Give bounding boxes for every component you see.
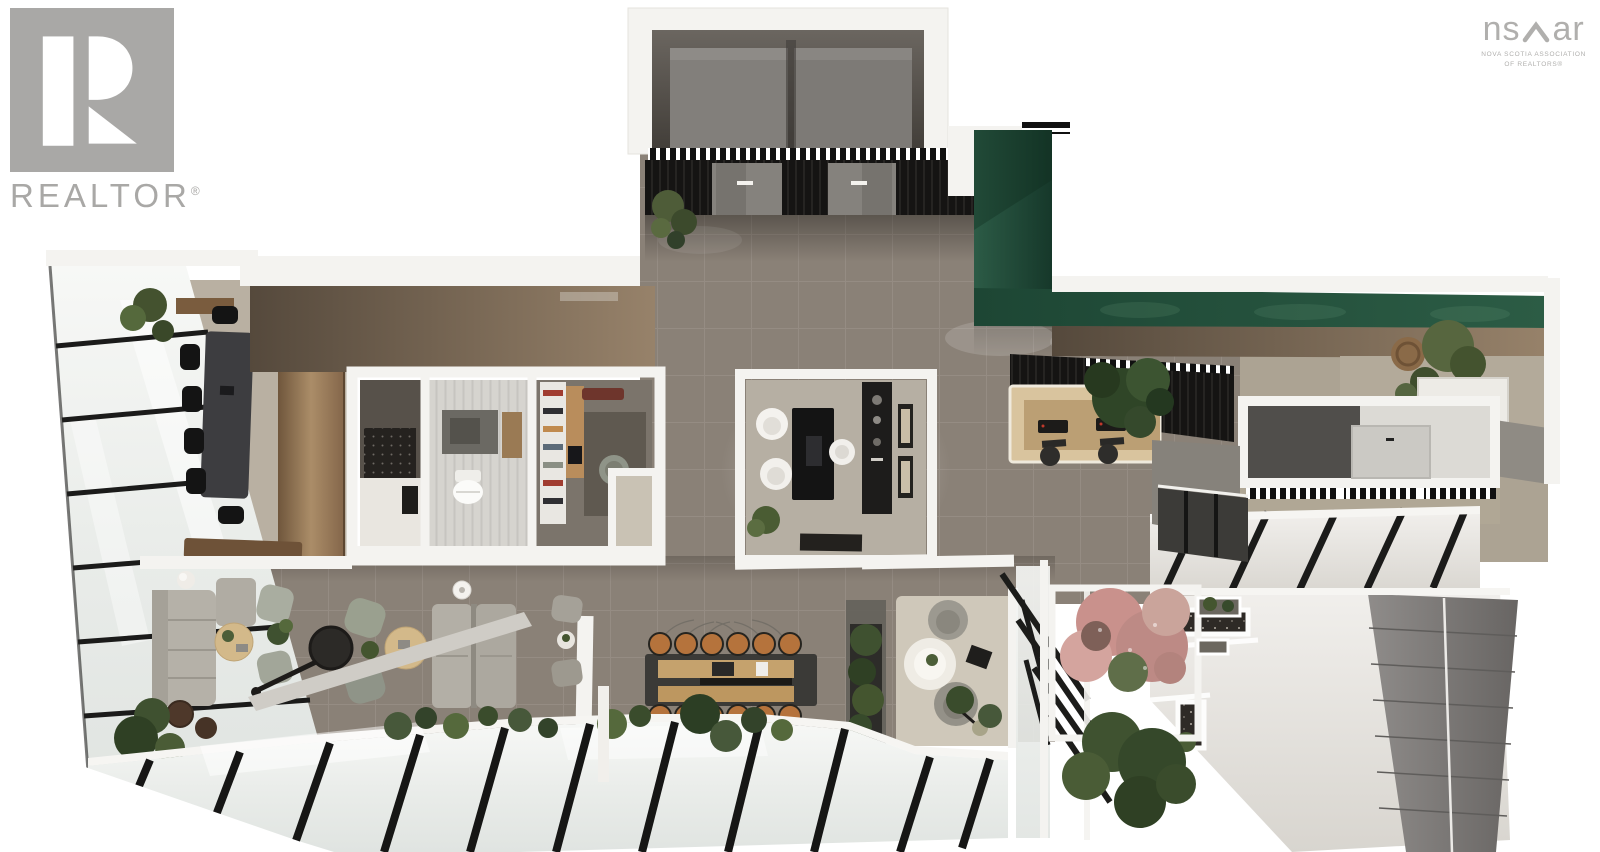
dark-rug	[800, 533, 862, 551]
toilet	[453, 470, 483, 504]
glass-wall-frame	[1040, 560, 1048, 838]
keyboard	[568, 446, 582, 464]
planter-box	[1198, 640, 1228, 654]
side-table	[177, 571, 195, 589]
ceiling-vent	[560, 292, 618, 301]
concrete-floor	[1495, 420, 1548, 484]
lounge-chair	[550, 658, 583, 688]
appliance	[712, 662, 734, 676]
wood-cabinet	[502, 412, 522, 458]
elevator-car	[794, 48, 912, 148]
coffee-machine	[402, 486, 418, 514]
bar-top	[658, 686, 794, 702]
upper-wall-band	[240, 256, 655, 372]
laptop	[220, 386, 234, 395]
nsar-logo: nsar NOVA SCOTIA ASSOCIATION OF REALTORS…	[1481, 12, 1586, 70]
study-desk	[566, 386, 584, 478]
bench	[582, 388, 624, 400]
realtor-logo: REALTOR®	[10, 8, 200, 212]
green-feature-walls	[974, 130, 1548, 328]
meeting-nook	[896, 588, 1018, 748]
outer-wall	[1544, 278, 1560, 484]
right-storage-room	[1238, 396, 1500, 524]
washroom-block	[352, 372, 660, 560]
house-icon	[1521, 16, 1551, 44]
wicker-stool	[167, 701, 193, 727]
realtor-wordmark: REALTOR®	[10, 179, 200, 212]
slat-screen	[1246, 488, 1496, 499]
chaise	[216, 578, 256, 626]
nsar-wordmark: nsar	[1481, 12, 1586, 46]
door	[1352, 426, 1430, 478]
lounge-chair	[550, 594, 583, 624]
elevator-car	[670, 48, 788, 148]
wicker-stool	[195, 717, 217, 739]
screenshot-canvas: REALTOR® nsar NOVA SCOTIA ASSOCIATION OF…	[0, 0, 1600, 852]
conference-table	[200, 331, 254, 499]
white-post	[598, 686, 609, 782]
door-niche	[612, 472, 656, 554]
nsar-tagline: NOVA SCOTIA ASSOCIATION OF REALTORS®	[1481, 50, 1586, 70]
floor-plan-render	[0, 0, 1600, 852]
realtor-r-icon	[10, 8, 174, 172]
coffee-table	[215, 623, 253, 661]
dark-window	[1158, 488, 1248, 562]
glass-office	[721, 374, 951, 570]
concrete-patio	[1150, 588, 1518, 852]
elevator-door-opening	[712, 163, 782, 215]
door-handle	[1386, 438, 1394, 441]
elevator-door-opening	[828, 163, 896, 215]
bathroom-floor	[428, 380, 528, 552]
monitor	[806, 436, 822, 466]
